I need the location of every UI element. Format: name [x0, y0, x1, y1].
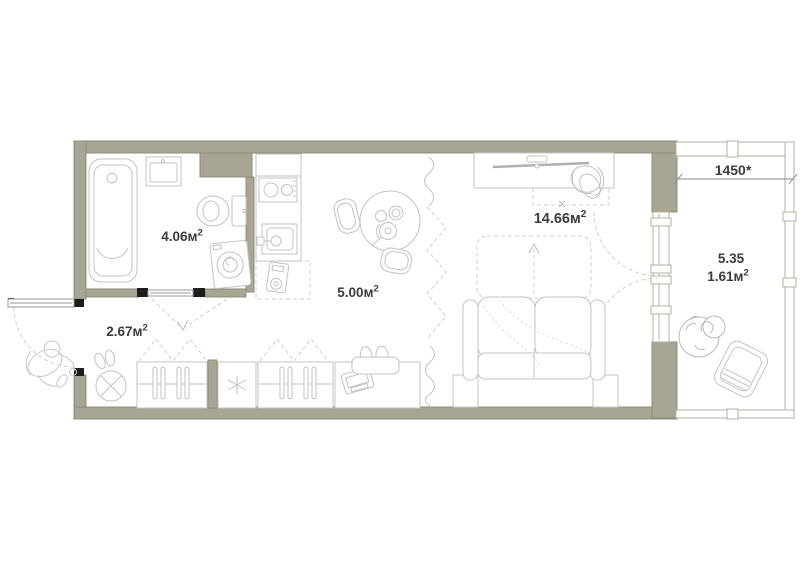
- wall-top: [74, 141, 677, 153]
- window-mullion: [783, 278, 796, 287]
- wall-left-upper: [74, 141, 86, 299]
- room-area-sup: 2: [581, 209, 587, 220]
- sofa-side-table: [453, 375, 478, 407]
- room-area-text: 5.00м: [337, 285, 373, 300]
- window-mullion: [651, 276, 671, 284]
- sofa-back-cushion: [478, 297, 535, 358]
- wall-bottom: [74, 407, 677, 419]
- wall-bathroom-bottom-left: [86, 289, 138, 297]
- person-figure: [23, 341, 76, 389]
- window-mullion: [727, 141, 738, 157]
- wall-cap: [137, 288, 148, 297]
- wardrobe-hangers: [137, 362, 207, 408]
- wardrobe-hangers: [258, 362, 333, 408]
- wall-cap: [193, 288, 205, 297]
- sofa-foldout-outline: [477, 236, 591, 298]
- bathroom-sink: [146, 157, 181, 186]
- washing-machine: [210, 240, 252, 289]
- sofa-armrest: [590, 300, 605, 380]
- room-label-balcony-reduced: 1.61м2: [707, 268, 749, 285]
- window-mullion: [651, 218, 671, 226]
- entrance-door-leaf: [8, 299, 74, 307]
- room-label-kitchen: 5.00м2: [337, 284, 379, 301]
- room-area-text: 2.67м: [106, 324, 142, 339]
- dining-chair: [332, 197, 362, 235]
- bathroom-sliding-door-leaf: [148, 290, 193, 296]
- wardrobe-bifold-doors-guide: [260, 339, 328, 361]
- floor-plan-canvas: 4.06м2 2.67м2 5.00м2 14.66м2 5.35 1.61м2…: [0, 0, 800, 566]
- plant: [679, 316, 725, 357]
- room-label-balcony-full: 5.35: [718, 251, 745, 266]
- wall-right-lower: [652, 342, 677, 418]
- balcony-door-swing-arc: [594, 212, 658, 276]
- shoes: [93, 349, 116, 370]
- window-mullion: [651, 265, 671, 273]
- curtain-zigzag-guide: [427, 207, 446, 338]
- bathtub: [89, 159, 137, 282]
- room-label-living-room: 14.66м2: [534, 209, 587, 227]
- dining-chair: [379, 247, 413, 276]
- dimension-label: 1450*: [715, 162, 752, 178]
- wall-right-upper: [652, 153, 677, 212]
- room-label-bathroom: 4.06м2: [161, 228, 203, 245]
- sofa-armrest: [463, 300, 478, 380]
- window-mullion: [651, 306, 671, 314]
- wardrobe-bifold-doors-guide: [139, 339, 207, 361]
- room-area-sup: 2: [373, 284, 378, 295]
- room-area-text: 1.61м: [707, 269, 743, 284]
- dining-table: [360, 191, 420, 251]
- window-mullion: [783, 212, 796, 221]
- window-mullion: [727, 409, 738, 419]
- curtain-divider: [425, 157, 435, 406]
- room-area-text: 4.06м: [161, 229, 197, 244]
- desk-marker-x-icon: [559, 201, 565, 207]
- wall-bathroom-bottom-right: [205, 289, 246, 297]
- stove-cooktop: [259, 178, 297, 202]
- room-area-sup: 2: [743, 268, 748, 279]
- wall-pilaster-bath-kitchen: [200, 153, 252, 177]
- room-area-sup: 2: [197, 228, 202, 239]
- sofa-bed: [453, 297, 618, 407]
- wall-cap: [74, 299, 84, 307]
- kitchen-sink: [257, 224, 297, 254]
- wall-hall-stub: [208, 360, 217, 408]
- utility-closet: [218, 362, 256, 408]
- floor-plan-page: 4.06м2 2.67м2 5.00м2 14.66м2 5.35 1.61м2…: [0, 0, 800, 566]
- sofa-back-cushion: [535, 297, 591, 358]
- room-label-hallway: 2.67м2: [106, 323, 148, 340]
- entrance-door-swing-arc: [14, 307, 74, 367]
- toilet: [197, 196, 246, 226]
- under-counter-unit: [266, 262, 289, 293]
- room-area-text: 14.66м: [534, 211, 581, 227]
- pouf-stool: [96, 371, 126, 401]
- bathroom-door-swing-guide: [152, 299, 227, 328]
- room-area-sup: 2: [142, 323, 147, 334]
- bag: [352, 346, 399, 374]
- balcony-chair: [711, 338, 770, 400]
